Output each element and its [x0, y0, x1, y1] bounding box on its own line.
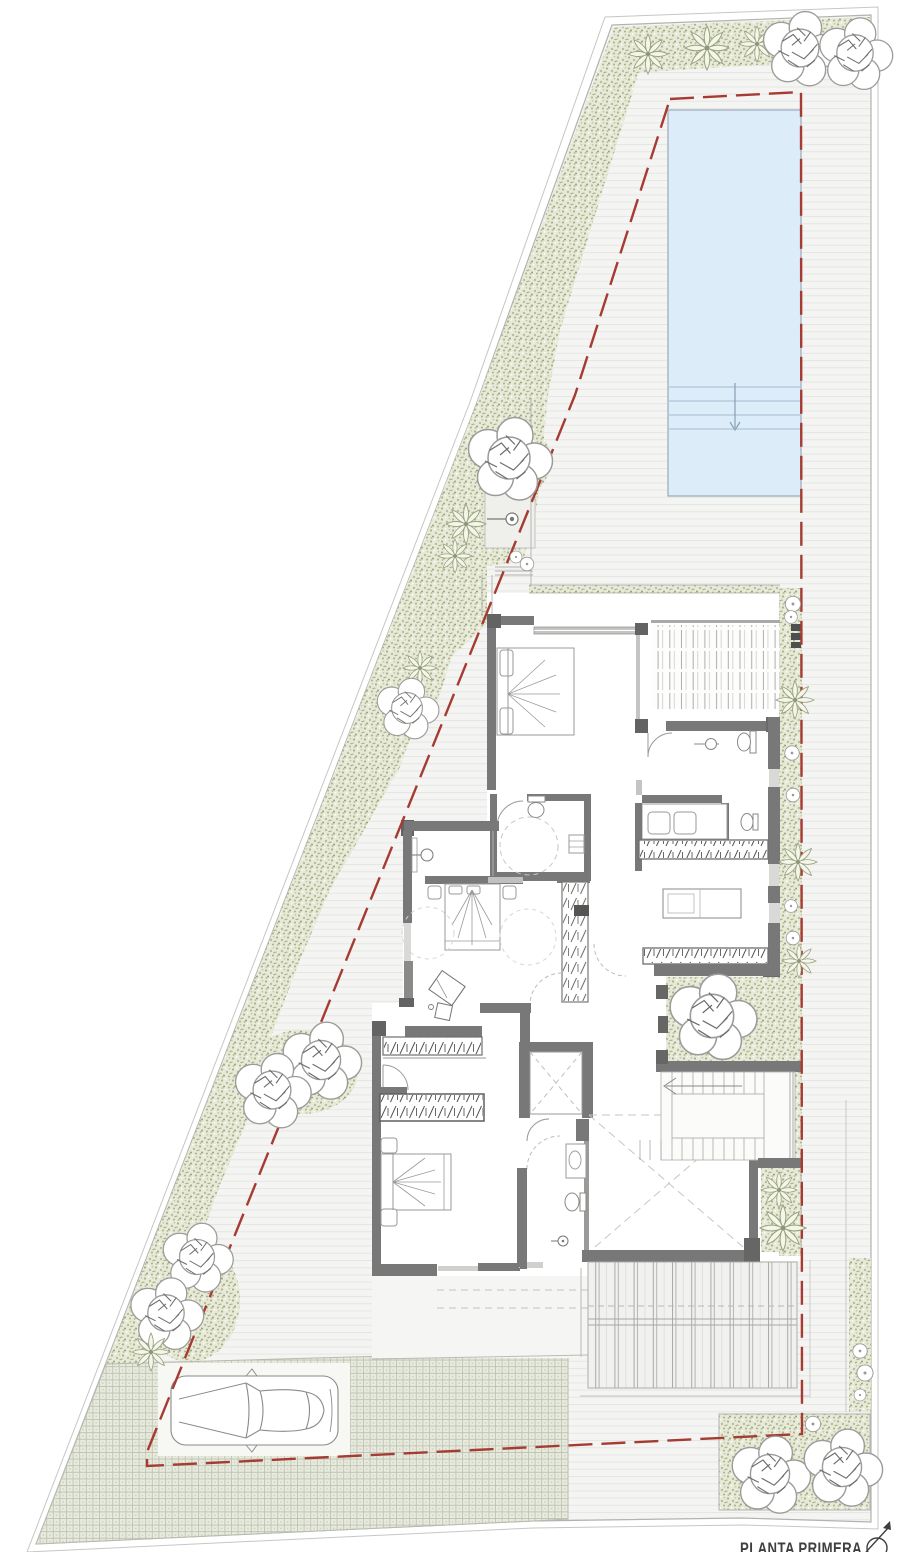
svg-text:PLANTA PRIMERA: PLANTA PRIMERA [740, 1540, 862, 1552]
